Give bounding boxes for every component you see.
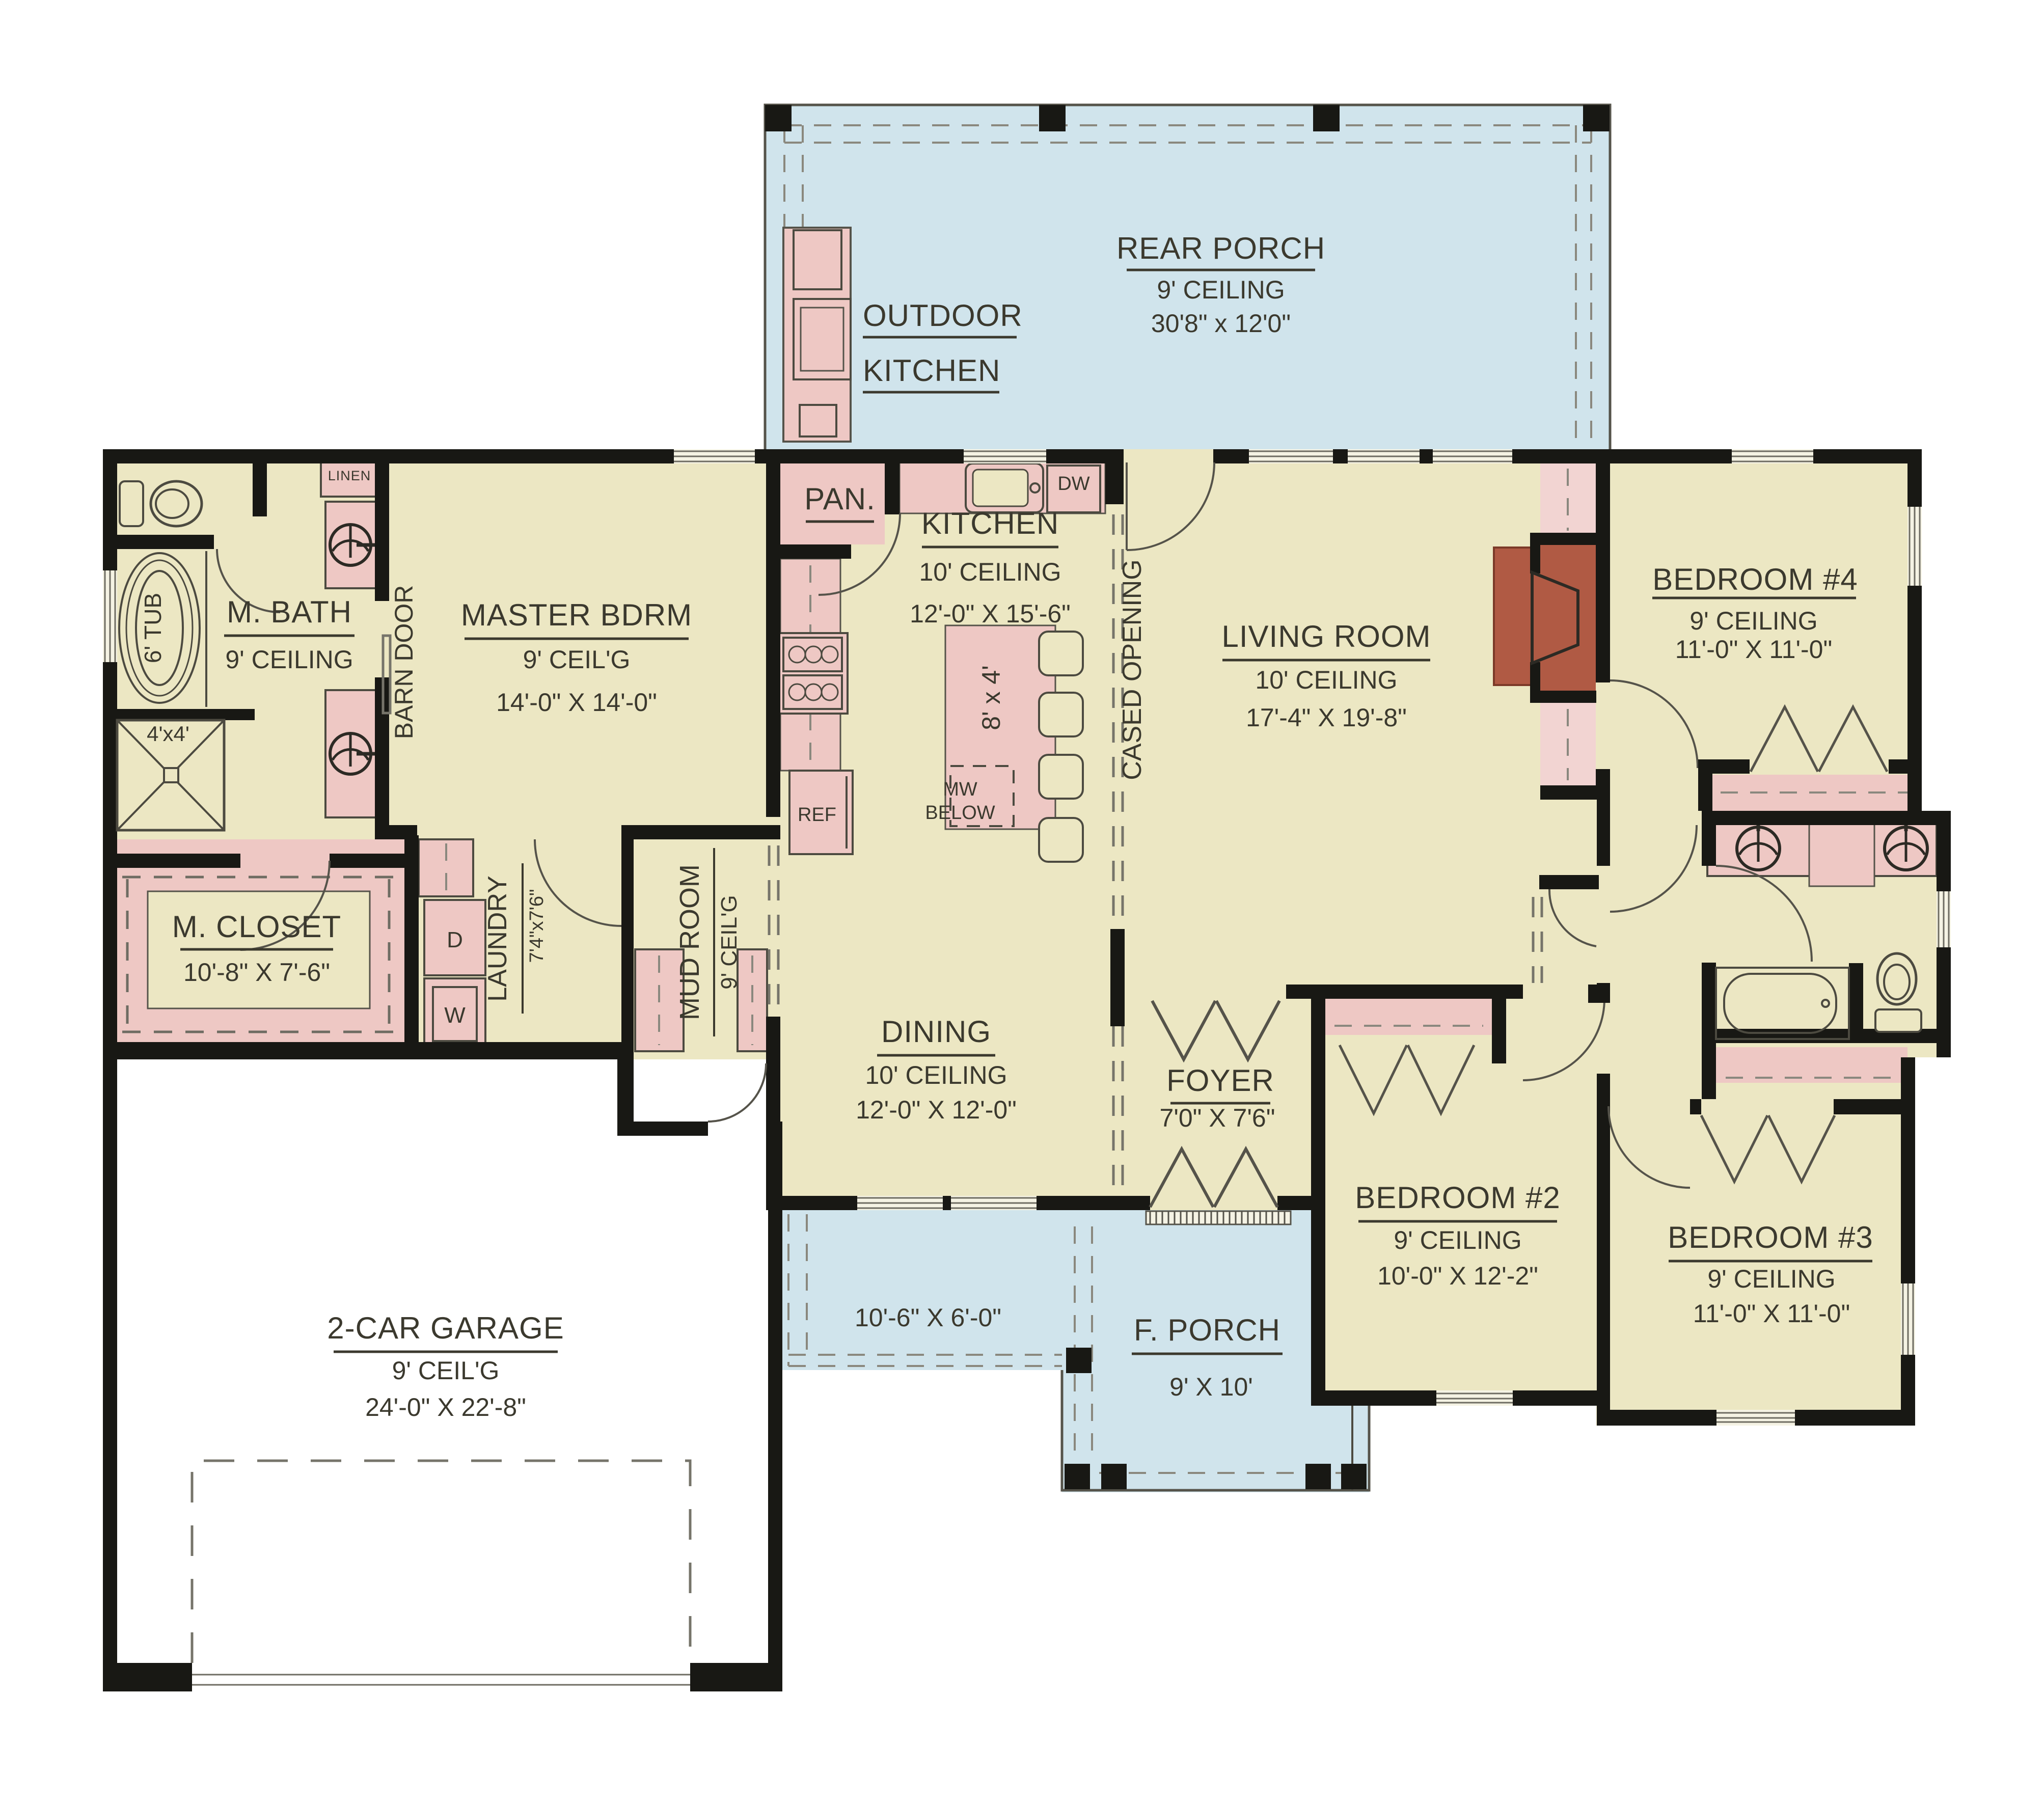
svg-text:MASTER BDRM: MASTER BDRM: [461, 598, 692, 632]
svg-text:FOYER: FOYER: [1166, 1063, 1274, 1098]
svg-text:DW: DW: [1057, 473, 1089, 495]
svg-text:12'-0" X 12'-0": 12'-0" X 12'-0": [856, 1096, 1017, 1124]
svg-text:BEDROOM #4: BEDROOM #4: [1652, 562, 1858, 596]
svg-text:D: D: [447, 927, 463, 952]
svg-text:10' CEILING: 10' CEILING: [1255, 666, 1397, 694]
svg-text:8' x 4': 8' x 4': [977, 665, 1005, 730]
svg-text:MUD ROOM: MUD ROOM: [674, 864, 705, 1020]
svg-text:7'0" X 7'6": 7'0" X 7'6": [1160, 1104, 1275, 1132]
svg-text:DINING: DINING: [881, 1015, 991, 1049]
svg-text:9' CEIL'G: 9' CEIL'G: [717, 895, 742, 990]
svg-text:11'-0" X 11'-0": 11'-0" X 11'-0": [1675, 635, 1832, 664]
svg-text:LIVING ROOM: LIVING ROOM: [1221, 619, 1431, 653]
svg-text:24'-0" X 22'-8": 24'-0" X 22'-8": [365, 1393, 526, 1422]
svg-text:6' TUB: 6' TUB: [140, 593, 166, 663]
svg-text:9' CEILING: 9' CEILING: [1707, 1265, 1835, 1293]
svg-text:CASED OPENING: CASED OPENING: [1118, 559, 1147, 780]
svg-text:LINEN: LINEN: [328, 468, 371, 483]
svg-text:9' CEIL'G: 9' CEIL'G: [523, 645, 631, 674]
svg-text:KITCHEN: KITCHEN: [921, 506, 1059, 540]
svg-text:9' CEILING: 9' CEILING: [1689, 607, 1817, 635]
svg-text:9' CEILING: 9' CEILING: [1157, 276, 1285, 304]
svg-text:10' CEILING: 10' CEILING: [919, 558, 1061, 586]
svg-text:12'-0" X 15'-6": 12'-0" X 15'-6": [910, 599, 1071, 628]
svg-text:7'4"x7'6": 7'4"x7'6": [526, 889, 548, 963]
svg-text:M. CLOSET: M. CLOSET: [172, 910, 341, 944]
svg-text:M. BATH: M. BATH: [227, 595, 352, 629]
svg-text:BEDROOM #3: BEDROOM #3: [1668, 1220, 1873, 1254]
svg-text:BARN DOOR: BARN DOOR: [390, 585, 418, 740]
svg-text:F. PORCH: F. PORCH: [1134, 1313, 1280, 1347]
svg-text:9' CEIL'G: 9' CEIL'G: [392, 1356, 500, 1385]
svg-text:W: W: [444, 1003, 466, 1028]
svg-text:17'-4" X 19'-8": 17'-4" X 19'-8": [1246, 703, 1407, 732]
svg-text:OUTDOOR: OUTDOOR: [863, 298, 1023, 333]
svg-text:9' X 10': 9' X 10': [1169, 1373, 1253, 1401]
svg-text:BEDROOM #2: BEDROOM #2: [1355, 1181, 1560, 1215]
svg-text:BELOW: BELOW: [925, 802, 995, 824]
svg-text:4'x4': 4'x4': [147, 722, 189, 746]
svg-text:KITCHEN: KITCHEN: [863, 353, 1000, 388]
svg-text:2-CAR GARAGE: 2-CAR GARAGE: [327, 1311, 564, 1345]
svg-text:LAUNDRY: LAUNDRY: [483, 876, 512, 1002]
svg-text:30'8" x 12'0": 30'8" x 12'0": [1151, 309, 1291, 338]
svg-text:14'-0" X 14'-0": 14'-0" X 14'-0": [496, 688, 657, 717]
svg-text:11'-0" X 11'-0": 11'-0" X 11'-0": [1693, 1299, 1850, 1328]
svg-text:10'-6" X 6'-0": 10'-6" X 6'-0": [855, 1303, 1001, 1332]
svg-text:10'-0" X 12'-2": 10'-0" X 12'-2": [1377, 1262, 1538, 1290]
svg-text:9' CEILING: 9' CEILING: [1394, 1226, 1521, 1254]
svg-text:REF: REF: [798, 804, 836, 826]
svg-text:PAN.: PAN.: [804, 482, 876, 516]
svg-text:MW: MW: [943, 779, 977, 800]
svg-text:9' CEILING: 9' CEILING: [225, 645, 353, 674]
svg-text:10' CEILING: 10' CEILING: [865, 1061, 1007, 1089]
svg-text:10'-8" X 7'-6": 10'-8" X 7'-6": [183, 958, 330, 987]
svg-text:REAR PORCH: REAR PORCH: [1116, 231, 1325, 265]
